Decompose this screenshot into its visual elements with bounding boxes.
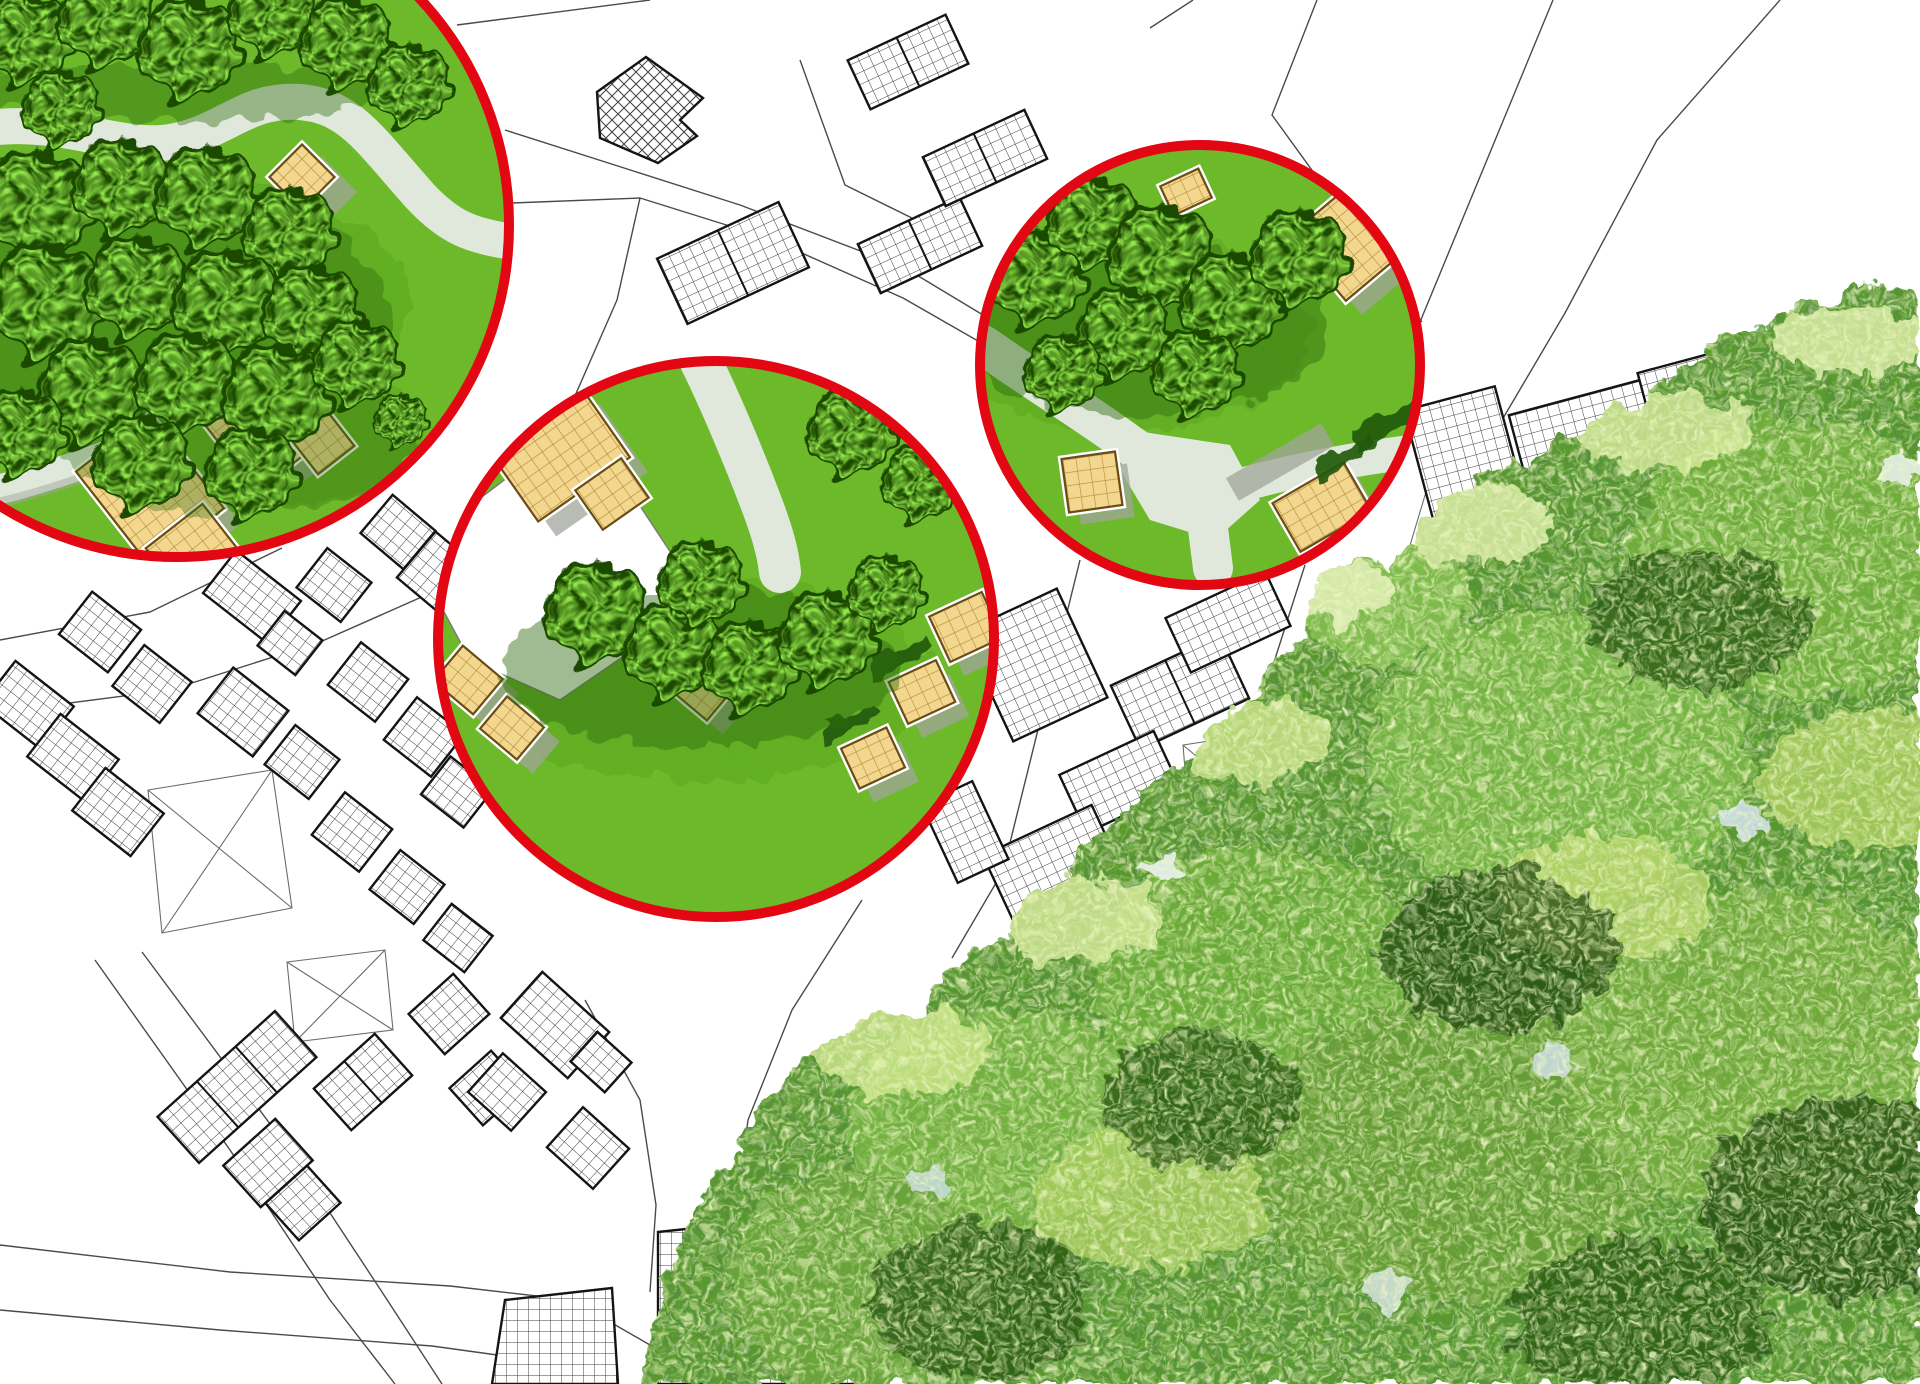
masterplan-canvas [0,0,1920,1384]
masterplan-drawing [0,0,1920,1384]
hatched-building [492,1288,618,1384]
